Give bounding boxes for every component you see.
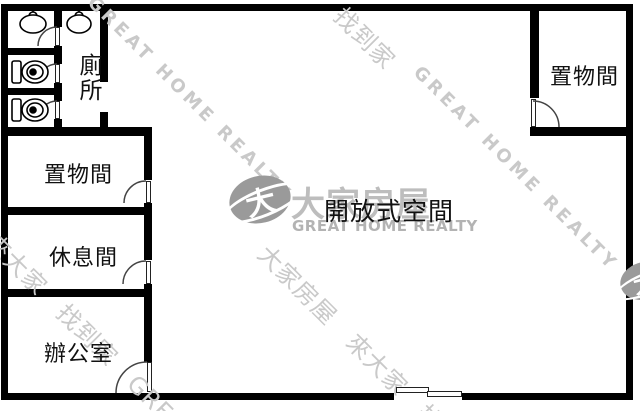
room-label-open-space: 開放式空間 (324, 192, 454, 228)
room-label-office: 辦公室 (44, 336, 113, 368)
toilet-icon (12, 99, 48, 121)
door-arc-lounge (123, 261, 146, 284)
floorplan-frame: GREAT HOME REALTY 找到家 GREAT HOME REALTY … (0, 0, 640, 411)
door-arc-storage-right (533, 101, 559, 127)
sink-icon (20, 9, 46, 33)
door-arc-storage-left (124, 181, 146, 203)
sink-icon (67, 9, 91, 33)
door-arc-office (116, 362, 147, 393)
room-label-storage-right: 置物間 (550, 59, 619, 91)
room-label-storage-left: 置物間 (44, 157, 113, 189)
toilet-icon (12, 61, 48, 83)
room-label-lounge: 休息間 (49, 240, 118, 272)
room-label-toilet: 廁所 (71, 53, 105, 103)
